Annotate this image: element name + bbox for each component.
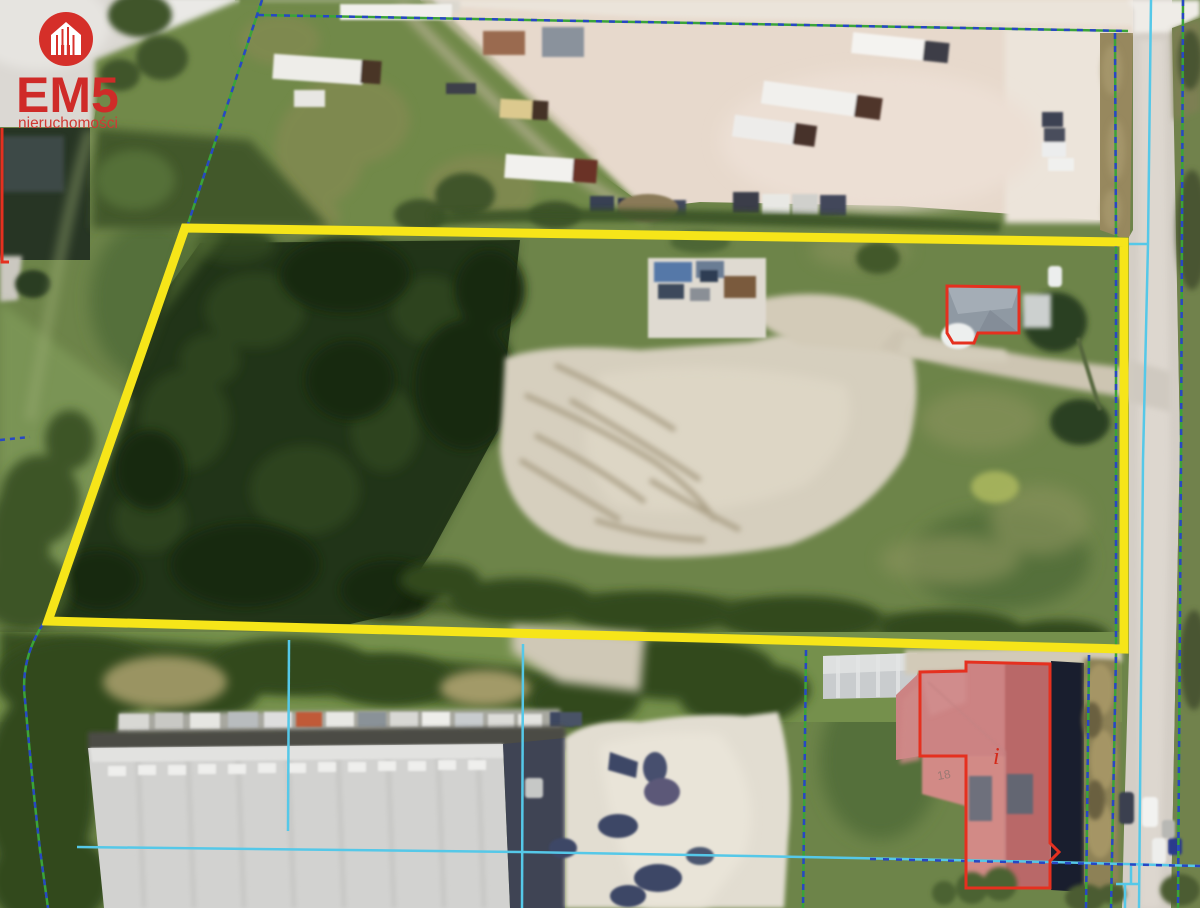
svg-text:nieruchomości: nieruchomości bbox=[18, 115, 118, 132]
svg-text:i: i bbox=[993, 744, 1000, 770]
svg-text:18: 18 bbox=[936, 767, 952, 783]
